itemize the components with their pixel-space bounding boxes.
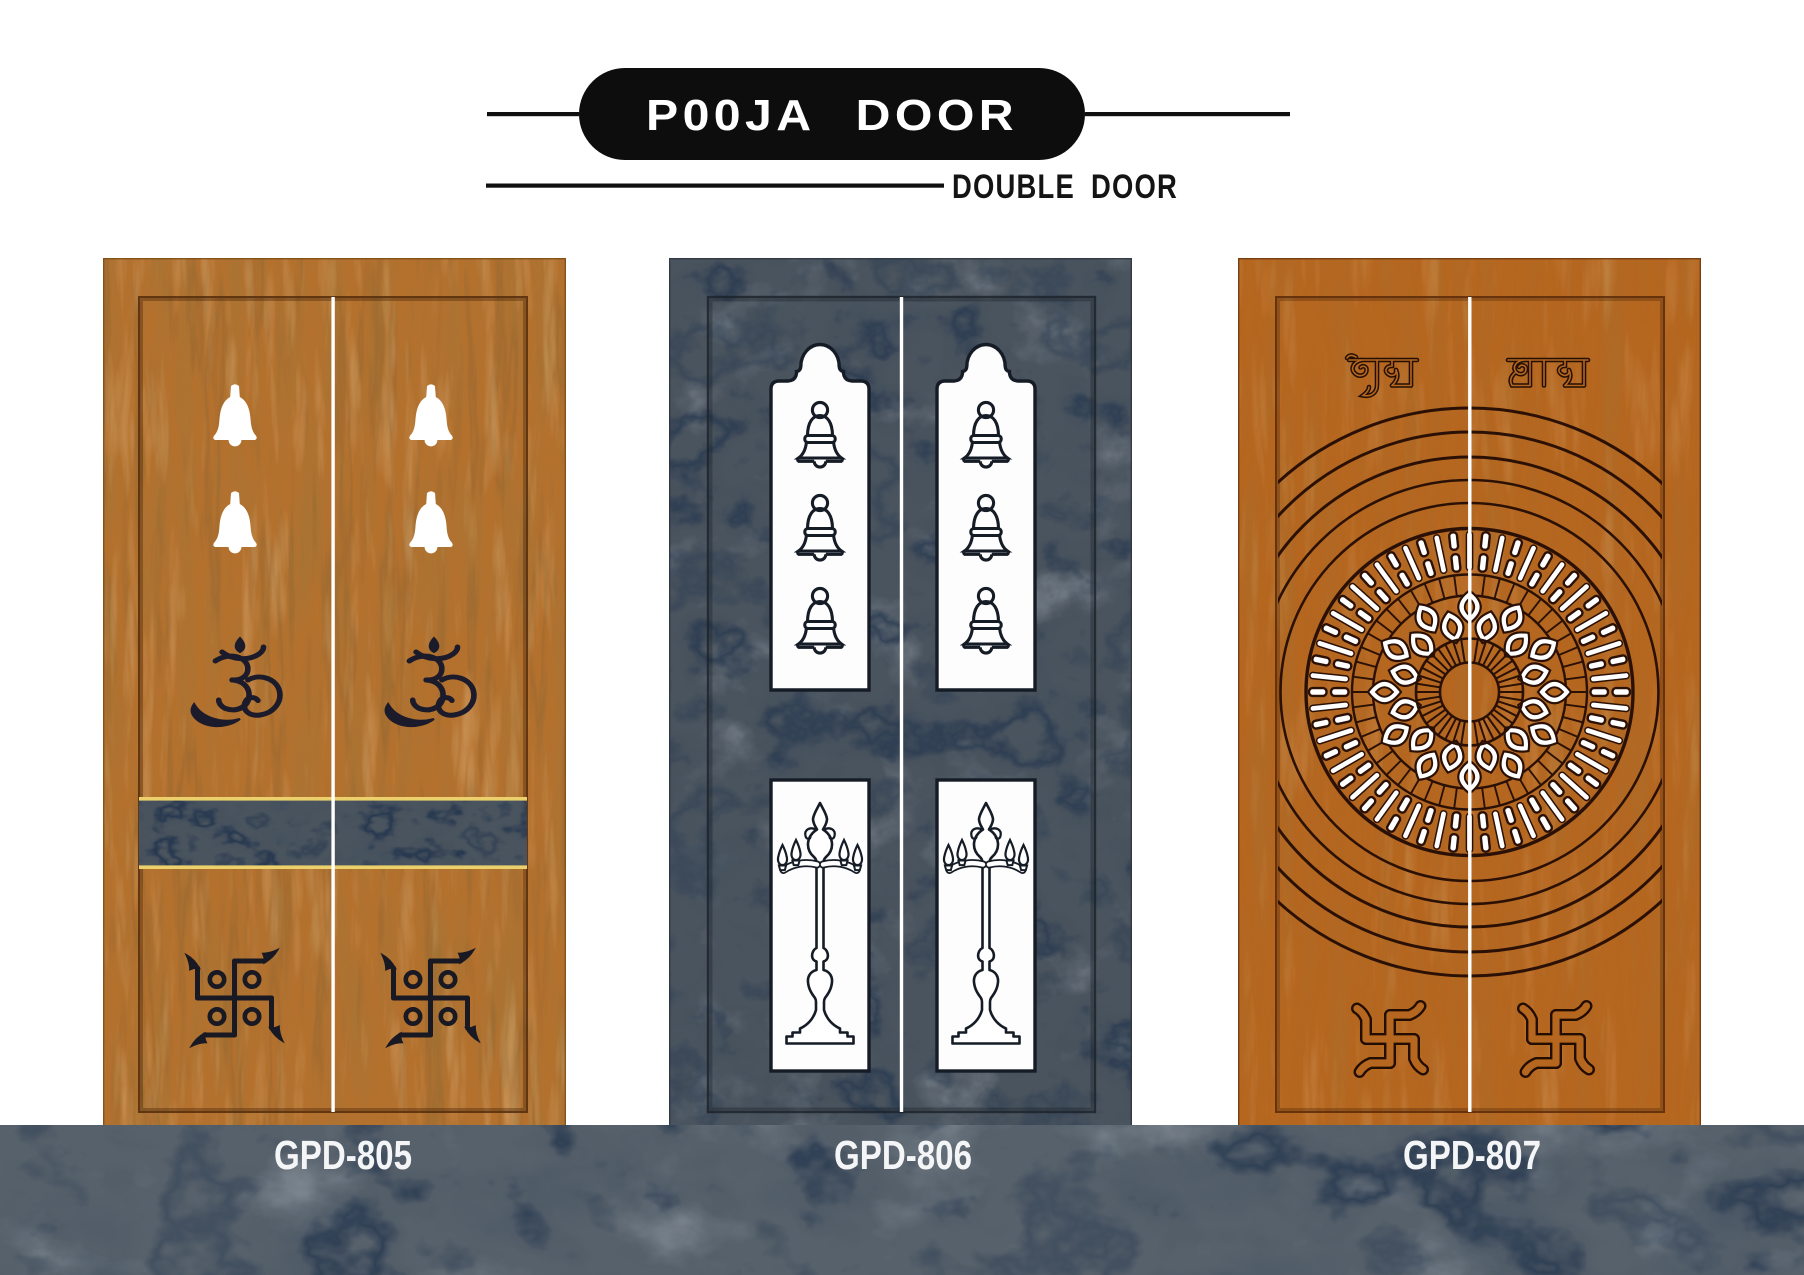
svg-text:P00JA DOOR: P00JA DOOR [646, 91, 1018, 140]
svg-text:GPD-805: GPD-805 [274, 1132, 412, 1178]
svg-text:GPD-806: GPD-806 [834, 1132, 972, 1178]
svg-text:DOUBLE DOOR: DOUBLE DOOR [952, 168, 1178, 206]
svg-text:GPD-807: GPD-807 [1403, 1132, 1541, 1178]
